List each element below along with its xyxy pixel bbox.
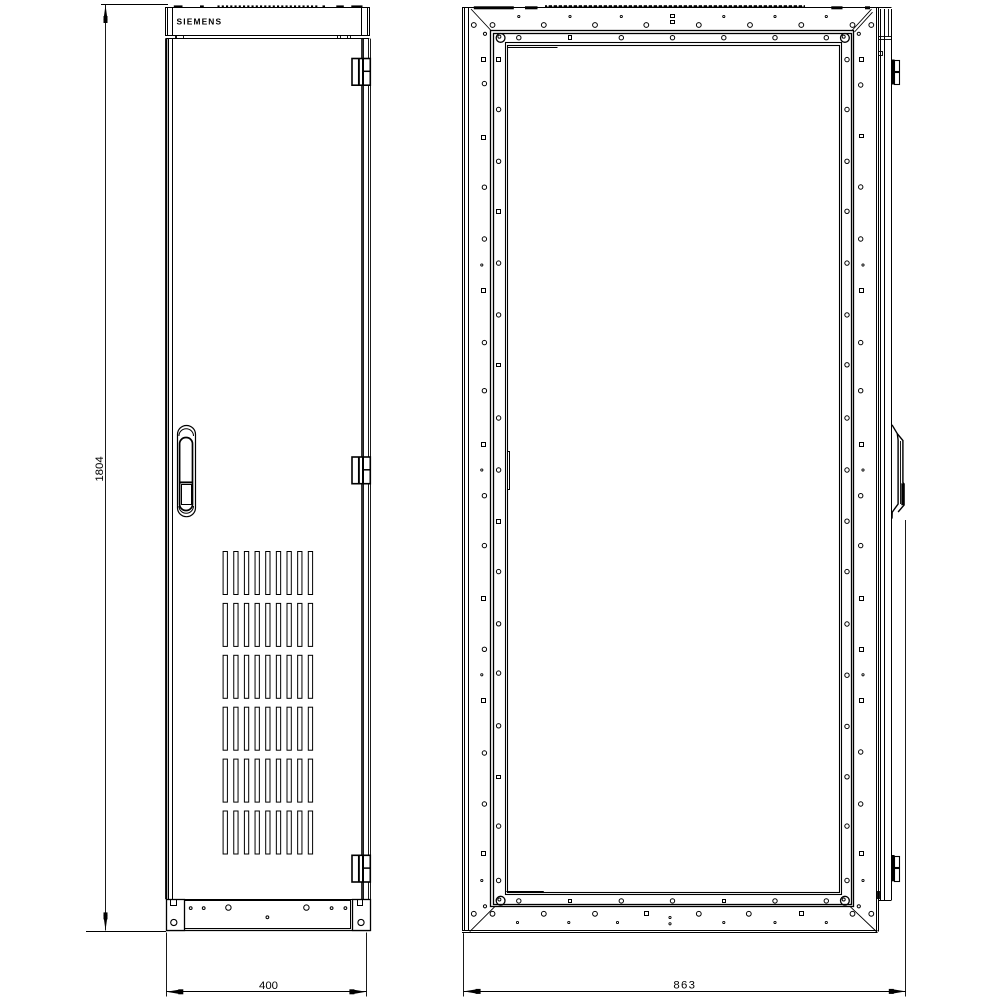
svg-text:400: 400 [259,980,278,992]
svg-text:SIEMENS: SIEMENS [177,17,223,27]
svg-text:863: 863 [673,979,696,991]
svg-text:1804: 1804 [94,456,106,481]
